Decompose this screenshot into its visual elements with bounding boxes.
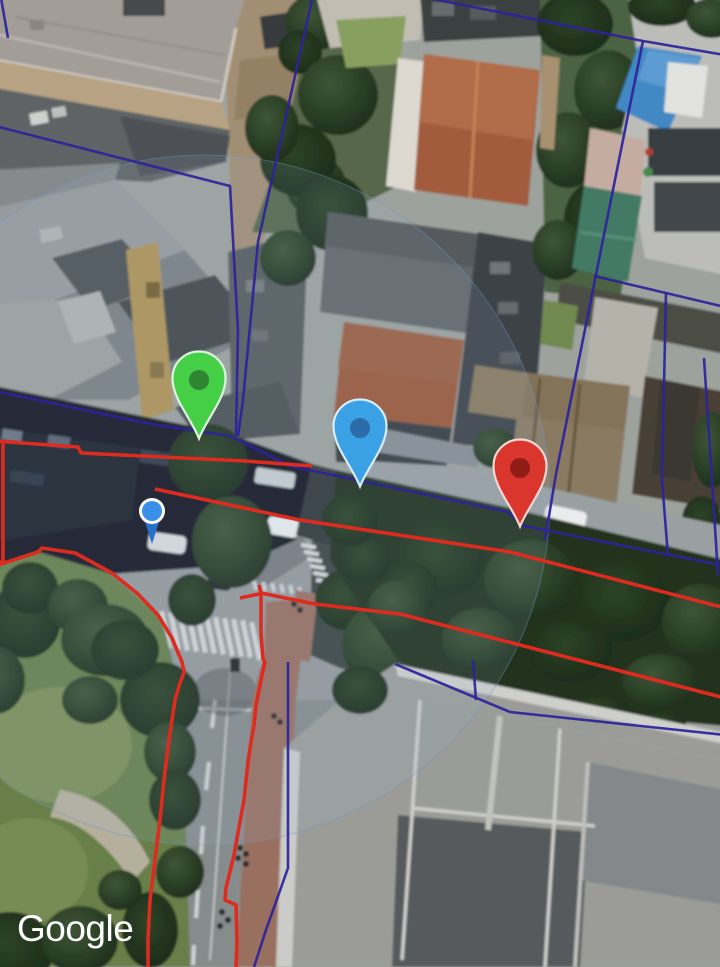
svg-text:Google: Google <box>17 908 133 949</box>
